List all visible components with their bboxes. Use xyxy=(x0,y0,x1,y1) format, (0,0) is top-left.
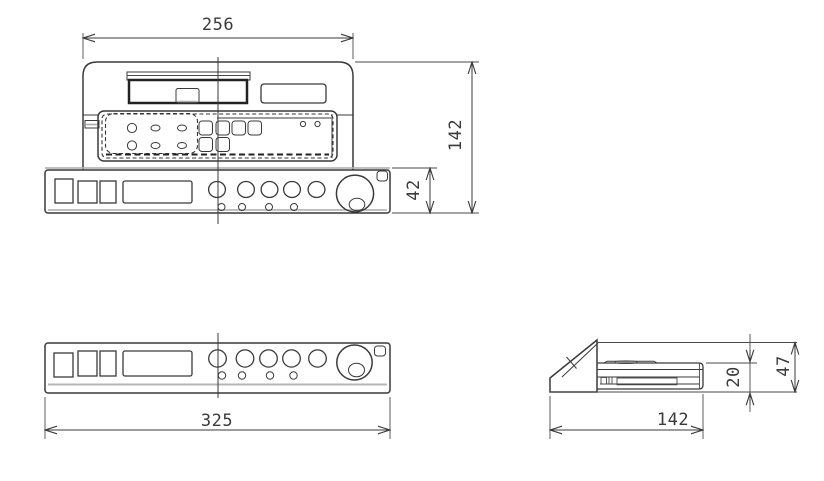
panel-key xyxy=(78,181,97,203)
small-key xyxy=(315,121,320,126)
side-view: 20 47 142 xyxy=(550,334,797,439)
small-key xyxy=(238,372,245,379)
panel-key xyxy=(100,351,116,376)
overlay-key-row xyxy=(199,118,331,152)
side-chassis xyxy=(597,361,703,389)
overlay-left-pad xyxy=(106,114,198,154)
dim-label-side-depth: 142 xyxy=(657,410,689,430)
jog-dial xyxy=(337,345,372,380)
display-window xyxy=(261,84,326,103)
dim-chassis-height: 20 xyxy=(724,334,750,412)
round-key xyxy=(238,182,255,198)
dim-side-depth: 142 xyxy=(550,394,703,439)
small-key xyxy=(300,121,305,126)
dim-label-front-width: 325 xyxy=(201,411,233,431)
round-key xyxy=(261,182,278,198)
corner-key xyxy=(375,346,386,356)
square-key xyxy=(232,121,246,135)
dim-overall-width: 256 xyxy=(83,15,353,59)
square-key xyxy=(199,121,213,135)
small-key xyxy=(266,372,273,379)
round-button xyxy=(127,123,136,132)
panel-key xyxy=(55,179,73,203)
round-key xyxy=(283,350,301,367)
corner-key xyxy=(377,171,388,181)
round-button xyxy=(127,141,136,150)
disc-edge xyxy=(615,361,637,364)
oval-button xyxy=(178,125,187,131)
jog-dial-knob xyxy=(349,198,365,210)
jog-dial xyxy=(336,175,373,212)
round-key xyxy=(260,350,278,367)
square-key xyxy=(248,121,262,135)
panel-display xyxy=(123,351,192,376)
round-key xyxy=(209,182,226,198)
round-key xyxy=(309,350,327,367)
panel-key xyxy=(100,181,116,203)
round-key xyxy=(308,182,325,198)
oval-button xyxy=(151,143,160,149)
front-view: 325 xyxy=(45,333,390,439)
foot-detail xyxy=(601,378,607,385)
disc-tray xyxy=(127,72,250,103)
dim-label-overall-depth: 142 xyxy=(446,119,466,151)
control-overlay-panel xyxy=(85,111,337,161)
dim-panel-depth: 42 xyxy=(392,168,437,213)
top-front-view: 256 142 42 xyxy=(45,15,479,224)
panel-key xyxy=(54,353,73,377)
dim-label-panel-depth: 42 xyxy=(404,179,424,200)
small-key xyxy=(290,372,297,379)
dim-label-overall-width: 256 xyxy=(202,15,234,35)
side-panel-wedge xyxy=(550,340,598,392)
oval-button xyxy=(178,143,187,149)
square-key xyxy=(199,138,213,152)
round-key xyxy=(284,182,301,198)
dim-label-overall-height: 47 xyxy=(774,355,794,376)
dim-front-width: 325 xyxy=(45,397,390,439)
panel-key xyxy=(78,351,97,376)
jog-dial-knob xyxy=(349,363,365,377)
oval-button xyxy=(151,125,160,131)
panel-display xyxy=(123,181,192,203)
technical-drawing: 256 142 42 xyxy=(0,0,824,481)
round-key xyxy=(236,350,254,367)
dim-overall-height: 47 xyxy=(774,343,795,393)
small-key xyxy=(218,372,225,379)
dim-label-chassis-height: 20 xyxy=(724,366,744,387)
